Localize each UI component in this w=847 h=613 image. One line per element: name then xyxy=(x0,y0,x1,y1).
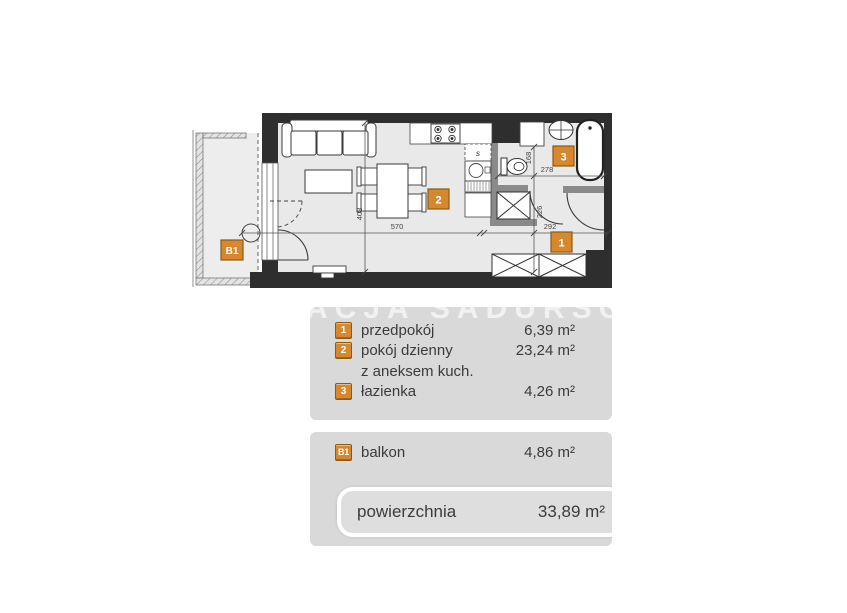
total-area-label: powierzchnia xyxy=(357,502,456,522)
legend-row-living: 2 pokój dzienny 23,24 m² xyxy=(335,341,575,362)
dim-168: 168 xyxy=(524,152,533,165)
room-name: z aneksem kuch. xyxy=(361,363,474,380)
room-area: 4,86 m² xyxy=(524,444,575,461)
dim-292: 292 xyxy=(544,222,557,231)
floorplan-page: s xyxy=(0,0,847,613)
wardrobe xyxy=(492,254,586,277)
kitchen-cabinet-dashed: s xyxy=(465,144,491,161)
dim-226: 226 xyxy=(535,206,544,219)
legend-row-balcony: B1 balkon 4,86 m² xyxy=(335,442,575,463)
legend-rooms-panel: ACJA SADURSCY 1 przedpokój 6,39 m² 2 pok… xyxy=(310,307,612,420)
stove xyxy=(431,124,460,143)
total-area-value: 33,89 m² xyxy=(538,502,605,522)
legend-row-bath: 3 łazienka 4,26 m² xyxy=(335,382,575,403)
dining-table xyxy=(377,164,408,218)
legend-balcony-panel: B1 balkon 4,86 m² powierzchnia 33,89 m² xyxy=(310,432,612,546)
legend-badge-2: 2 xyxy=(335,342,352,359)
svg-text:1: 1 xyxy=(558,238,564,250)
badge-bath: 3 xyxy=(553,146,574,166)
svg-text:B1: B1 xyxy=(226,246,239,257)
room-area: 23,24 m² xyxy=(516,342,575,359)
dim-408: 408 xyxy=(355,208,364,221)
kitchen-symbol: s xyxy=(476,149,480,158)
legend-badge-1: 1 xyxy=(335,322,352,339)
room-area: 6,39 m² xyxy=(524,322,575,339)
room-name: przedpokój xyxy=(361,322,434,339)
legend-badge-3: 3 xyxy=(335,383,352,400)
legend-badge-b1: B1 xyxy=(335,444,352,461)
room-area: 4,26 m² xyxy=(524,383,575,400)
washing-machine xyxy=(520,122,544,146)
room-name: łazienka xyxy=(361,383,416,400)
dim-570: 570 xyxy=(391,222,404,231)
kitchen-cabinet xyxy=(465,193,491,217)
kitchen-drainer xyxy=(465,181,491,192)
dim-278: 278 xyxy=(541,165,554,174)
floorplan-drawing: s xyxy=(0,0,847,306)
badge-balcony: B1 xyxy=(221,240,243,260)
badge-living: 2 xyxy=(428,189,449,209)
bathtub xyxy=(577,120,603,180)
badge-hall: 1 xyxy=(551,232,572,252)
kitchen-sink xyxy=(465,161,491,181)
legend-row-hall: 1 przedpokój 6,39 m² xyxy=(335,320,575,341)
shaft-box xyxy=(497,192,530,219)
room-name: balkon xyxy=(361,444,405,461)
total-area-box: powierzchnia 33,89 m² xyxy=(337,487,612,537)
svg-text:3: 3 xyxy=(560,152,566,164)
coffee-table xyxy=(305,170,352,193)
legend-row-living-cont: z aneksem kuch. xyxy=(335,361,575,382)
washbasin xyxy=(549,121,573,140)
room-name: pokój dzienny xyxy=(361,342,453,359)
svg-text:2: 2 xyxy=(435,195,441,207)
